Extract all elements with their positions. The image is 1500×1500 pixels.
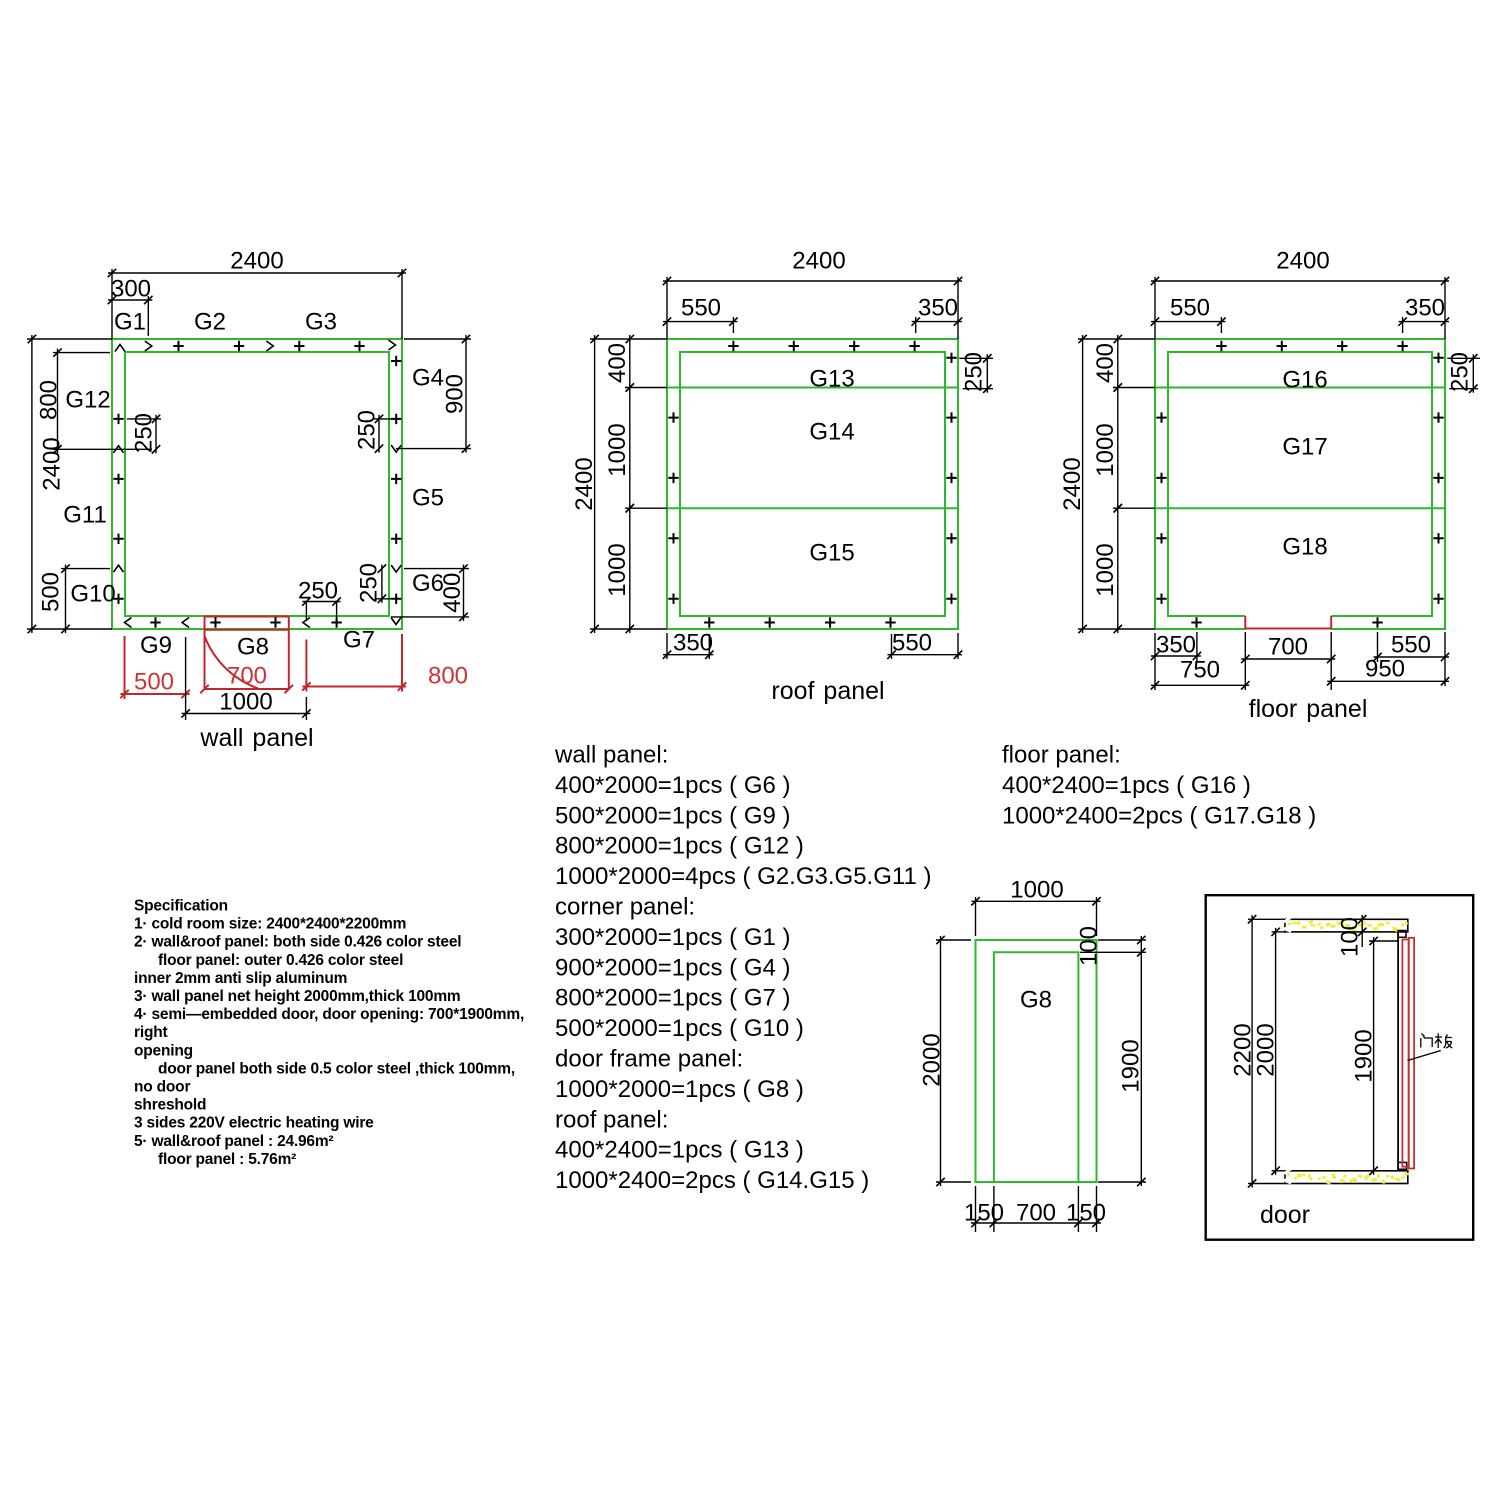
svg-text:700: 700 <box>1016 1200 1056 1227</box>
svg-text:door: door <box>1260 1201 1310 1229</box>
svg-text:550: 550 <box>1170 295 1210 322</box>
svg-text:G4: G4 <box>412 365 444 392</box>
svg-text:G11: G11 <box>63 502 107 529</box>
svg-text:floor panel: outer 0.426: floor panel: outer 0.426 color steel <box>158 952 403 969</box>
svg-text:400: 400 <box>604 343 631 383</box>
svg-text:1000: 1000 <box>604 543 631 596</box>
svg-text:900: 900 <box>442 374 469 414</box>
svg-text:G14: G14 <box>809 419 854 446</box>
svg-text:400*2400=1pcs ( G16 ): 400*2400=1pcs ( G16 ) <box>1002 772 1251 799</box>
svg-text:2400: 2400 <box>1276 248 1329 275</box>
svg-text:800*2000=1pcs ( G12 ): 800*2000=1pcs ( G12 ) <box>555 833 804 860</box>
svg-text:350: 350 <box>1156 632 1196 659</box>
svg-text:corner panel:: corner panel: <box>555 894 695 921</box>
svg-text:550: 550 <box>681 295 721 322</box>
svg-text:700: 700 <box>227 663 267 690</box>
svg-text:5· wall&roof panel : 24.96m²: 5· wall&roof panel : 24.96m² <box>134 1133 333 1150</box>
svg-text:3· wall panel net height 2: 3· wall panel net height 2000mm,thick 10… <box>134 988 461 1005</box>
svg-text:G16: G16 <box>1282 367 1327 394</box>
svg-text:1000: 1000 <box>1010 877 1063 904</box>
svg-text:900*2000=1pcs ( G4 ): 900*2000=1pcs ( G4 ) <box>555 954 791 981</box>
svg-text:G12: G12 <box>65 387 110 414</box>
svg-text:G7: G7 <box>343 627 375 654</box>
svg-text:roof panel:: roof panel: <box>555 1106 668 1133</box>
svg-text:550: 550 <box>892 630 932 657</box>
svg-text:G13: G13 <box>809 366 854 393</box>
svg-text:right: right <box>134 1024 167 1041</box>
svg-text:1900: 1900 <box>1118 1039 1145 1092</box>
svg-text:500*2000=1pcs ( G9 ): 500*2000=1pcs ( G9 ) <box>555 802 791 829</box>
svg-text:350: 350 <box>918 295 958 322</box>
svg-text:2400: 2400 <box>1059 457 1086 510</box>
svg-text:800*2000=1pcs ( G7 ): 800*2000=1pcs ( G7 ) <box>555 985 791 1012</box>
svg-text:roof panel: roof panel <box>771 677 884 705</box>
svg-text:400*2000=1pcs ( G6 ): 400*2000=1pcs ( G6 ) <box>555 772 791 799</box>
svg-text:950: 950 <box>1365 656 1405 683</box>
svg-text:700: 700 <box>1268 634 1308 661</box>
svg-text:G18: G18 <box>1282 534 1327 561</box>
svg-text:1000: 1000 <box>219 689 272 716</box>
svg-text:no door: no door <box>134 1079 190 1096</box>
svg-text:2000: 2000 <box>1253 1023 1280 1076</box>
svg-text:G6: G6 <box>412 570 444 597</box>
svg-text:floor panel:: floor panel: <box>1002 742 1121 769</box>
svg-text:inner 2mm anti slip alumin: inner 2mm anti slip aluminum <box>134 970 347 987</box>
svg-text:250: 250 <box>298 578 338 605</box>
svg-text:400*2400=1pcs ( G13 ): 400*2400=1pcs ( G13 ) <box>555 1137 804 1164</box>
svg-text:2400: 2400 <box>571 457 598 510</box>
svg-text:shreshold: shreshold <box>134 1097 206 1114</box>
svg-text:door panel both side 0.5: door panel both side 0.5 color steel ,th… <box>158 1060 515 1077</box>
svg-text:Specification: Specification <box>134 898 228 915</box>
svg-text:300*2000=1pcs ( G1 ): 300*2000=1pcs ( G1 ) <box>555 924 791 951</box>
svg-text:G9: G9 <box>140 632 172 659</box>
svg-text:500*2000=1pcs ( G10 ): 500*2000=1pcs ( G10 ) <box>555 1015 804 1042</box>
svg-text:350: 350 <box>673 630 713 657</box>
svg-text:750: 750 <box>1180 657 1220 684</box>
svg-text:550: 550 <box>1391 632 1431 659</box>
svg-text:G8: G8 <box>237 634 269 661</box>
svg-text:door frame panel:: door frame panel: <box>555 1046 743 1073</box>
svg-text:G15: G15 <box>809 540 854 567</box>
svg-text:1· cold room size: 2400*24: 1· cold room size: 2400*2400*2200mm <box>134 916 406 933</box>
svg-text:1000*2400=2pcs ( G17.G18 ): 1000*2400=2pcs ( G17.G18 ) <box>1002 802 1316 829</box>
svg-text:wall panel: wall panel <box>199 724 313 752</box>
svg-text:250: 250 <box>356 563 383 603</box>
svg-text:2400: 2400 <box>792 248 845 275</box>
svg-text:G17: G17 <box>1282 434 1327 461</box>
svg-text:G10: G10 <box>70 581 115 608</box>
svg-text:1000: 1000 <box>1092 543 1119 596</box>
svg-text:100: 100 <box>1337 917 1364 957</box>
svg-text:G3: G3 <box>305 309 337 336</box>
svg-text:500: 500 <box>38 572 65 612</box>
svg-text:1000: 1000 <box>1092 423 1119 476</box>
svg-text:1000*2000=1pcs ( G8 ): 1000*2000=1pcs ( G8 ) <box>555 1076 804 1103</box>
svg-text:250: 250 <box>354 410 381 450</box>
svg-text:2000: 2000 <box>919 1033 946 1086</box>
svg-text:300: 300 <box>111 276 151 303</box>
svg-text:1000: 1000 <box>604 423 631 476</box>
svg-text:500: 500 <box>134 669 174 696</box>
svg-text:350: 350 <box>1405 295 1445 322</box>
svg-text:800: 800 <box>36 380 63 420</box>
svg-text:wall panel:: wall panel: <box>554 742 668 769</box>
svg-text:opening: opening <box>134 1042 193 1059</box>
svg-text:G1: G1 <box>114 309 146 336</box>
svg-text:800: 800 <box>428 663 468 690</box>
svg-text:floor panel : 5.76m²: floor panel : 5.76m² <box>158 1151 296 1168</box>
svg-text:G8: G8 <box>1020 987 1052 1014</box>
svg-text:1000*2000=4pcs ( G2.G3.G5.G11: 1000*2000=4pcs ( G2.G3.G5.G11 ) <box>555 863 931 890</box>
svg-text:G5: G5 <box>412 485 444 512</box>
svg-text:2400: 2400 <box>230 248 283 275</box>
svg-text:1000*2400=2pcs ( G14.G15 ): 1000*2400=2pcs ( G14.G15 ) <box>555 1167 869 1194</box>
svg-text:1900: 1900 <box>1351 1029 1378 1082</box>
svg-text:3 sides 220V electric heat: 3 sides 220V electric heating wire <box>134 1115 374 1132</box>
svg-text:4· semi—embedded door, door: 4· semi—embedded door, door opening: 700… <box>134 1006 524 1023</box>
svg-text:400: 400 <box>1092 343 1119 383</box>
svg-text:G2: G2 <box>194 309 226 336</box>
svg-text:2· wall&roof panel: both s: 2· wall&roof panel: both side 0.426 colo… <box>134 934 461 951</box>
svg-text:150: 150 <box>1066 1200 1106 1227</box>
svg-text:150: 150 <box>964 1200 1004 1227</box>
svg-text:100: 100 <box>1076 926 1103 966</box>
svg-text:floor panel: floor panel <box>1249 695 1368 723</box>
